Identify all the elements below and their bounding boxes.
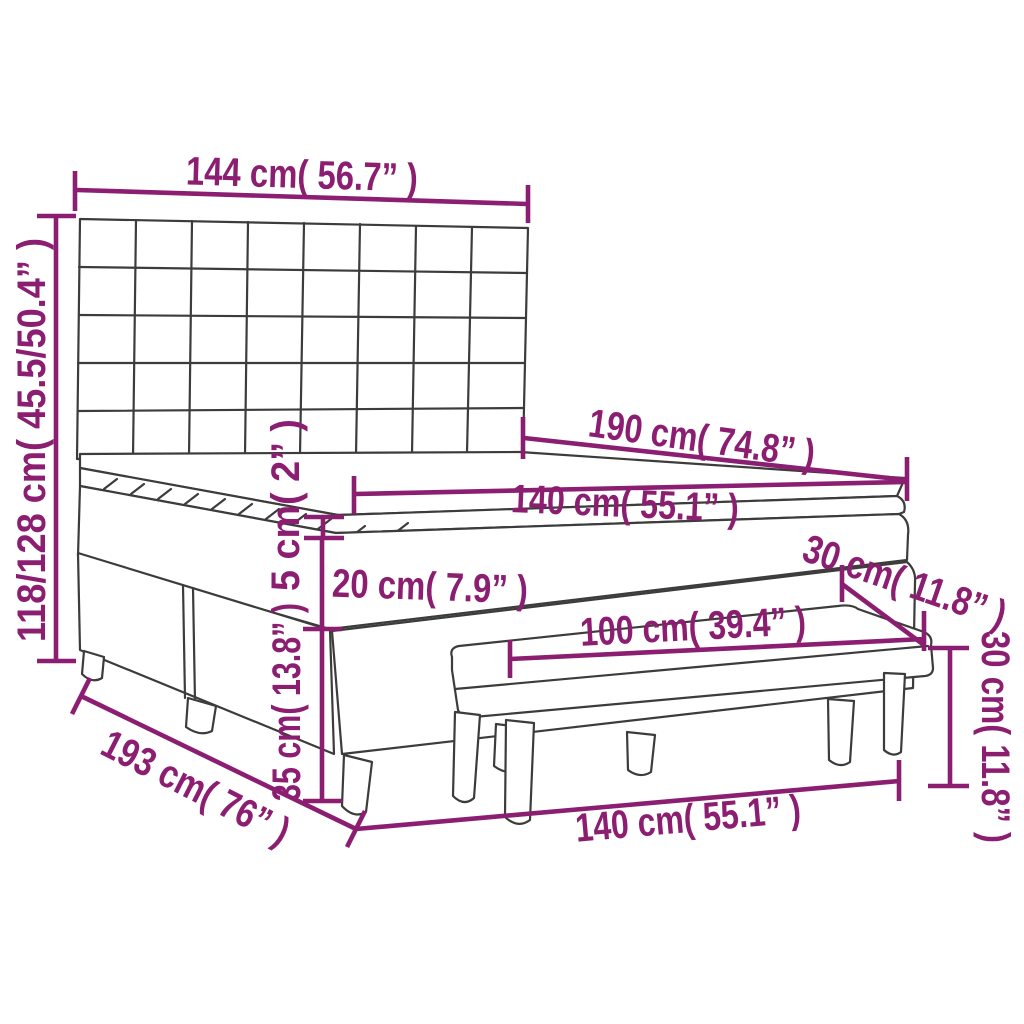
dim-label-base-leg-height: 35 cm( 13.8” ) [265,603,309,801]
bed-leg [342,755,372,814]
bench-leg [453,712,480,802]
bench-leg [627,732,655,775]
bench-leg [884,673,905,755]
dimension-bench-height [928,648,969,786]
bed-dimension-diagram: 144 cm( 56.7” ) 118/128 cm( 45.5/50.4” )… [0,0,1024,1024]
dim-label-mattress-height: 20 cm( 7.9” ) [331,562,528,613]
dim-label-total-height: 118/128 cm( 45.5/50.4” ) [10,238,54,642]
bench-leg [828,699,854,765]
dim-label-topper-height: 5 cm( 2” ) [264,419,308,591]
bench-leg [505,720,534,824]
dim-label-headboard-width: 144 cm( 56.7” ) [185,149,418,200]
bed-leg [82,651,104,680]
diagram-svg: 144 cm( 56.7” ) 118/128 cm( 45.5/50.4” )… [0,0,1024,1024]
dim-label-bed-width-bottom: 140 cm( 55.1” ) [574,787,803,851]
dim-label-bench-height: 30 cm( 11.8” ) [973,631,1017,843]
